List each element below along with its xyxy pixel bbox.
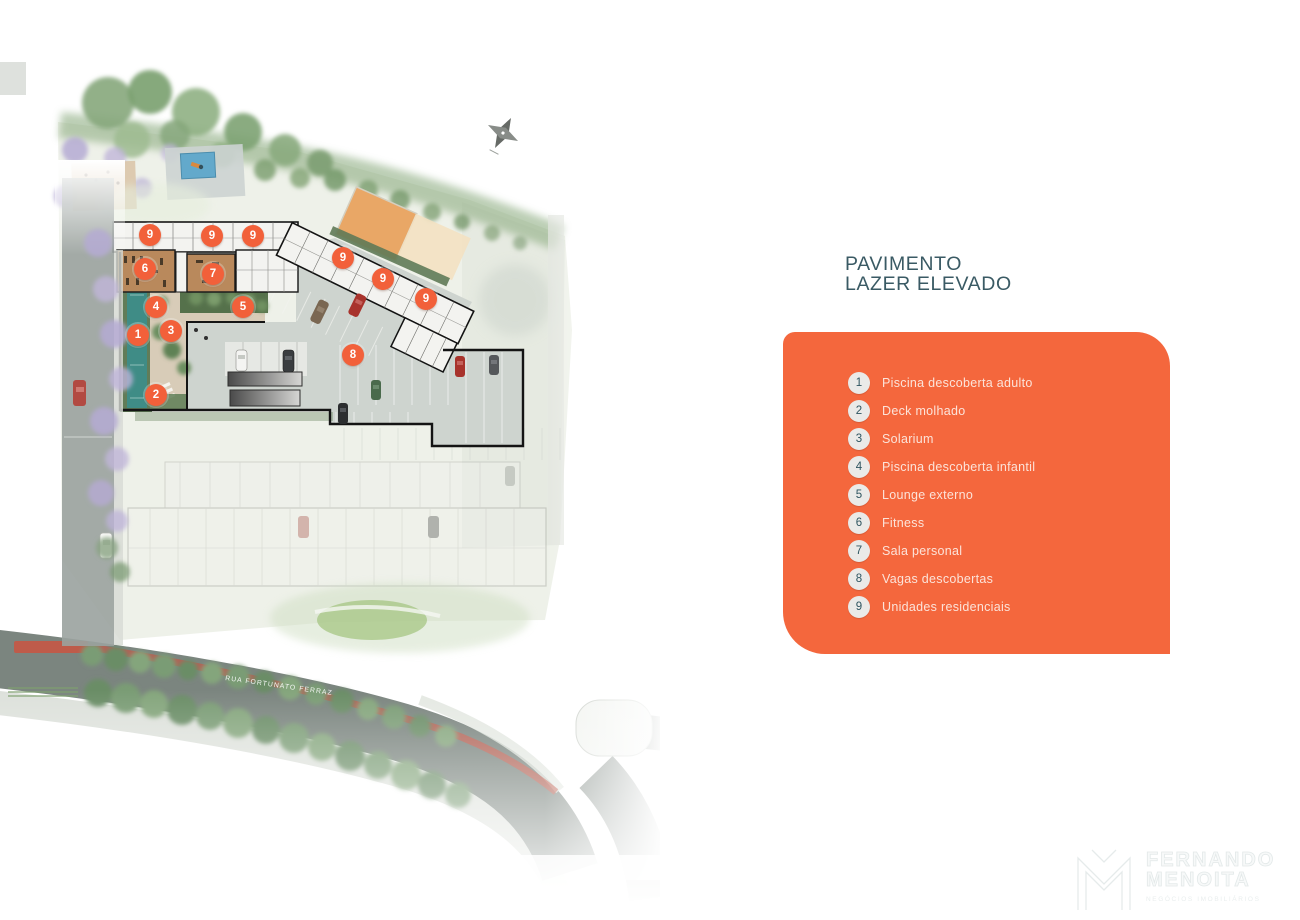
- plan-marker-number: 6: [142, 263, 148, 275]
- legend-panel: 1 Piscina descoberta adulto 2 Deck molha…: [783, 332, 1170, 654]
- plan-marker-number: 9: [380, 273, 386, 285]
- brand-tagline: NEGÓCIOS IMOBILIÁRIOS: [1146, 896, 1275, 903]
- plan-marker-number: 1: [135, 329, 141, 341]
- legend-item-number-badge: 2: [848, 400, 870, 422]
- plan-marker: 1: [127, 324, 149, 346]
- legend-item: 7 Sala personal: [783, 537, 1170, 565]
- plan-marker-number: 9: [340, 252, 346, 264]
- legend-item: 9 Unidades residenciais: [783, 593, 1170, 621]
- plan-marker: 9: [372, 268, 394, 290]
- legend-item-number-badge: 6: [848, 512, 870, 534]
- street-left: [55, 160, 133, 646]
- legend-item: 4 Piscina descoberta infantil: [783, 453, 1170, 481]
- plan-marker: 3: [160, 320, 182, 342]
- legend-item: 1 Piscina descoberta adulto: [783, 369, 1170, 397]
- legend-item: 5 Lounge externo: [783, 481, 1170, 509]
- plan-marker-number: 5: [240, 301, 246, 313]
- plan-marker-number: 7: [210, 268, 216, 280]
- plan-marker: 4: [145, 296, 167, 318]
- garage-ramp: [230, 390, 300, 406]
- legend-item-number-badge: 9: [848, 596, 870, 618]
- legend-item-label: Lounge externo: [882, 488, 973, 502]
- brand-monogram-icon: [1072, 842, 1136, 914]
- legend-item-label: Piscina descoberta adulto: [882, 376, 1033, 390]
- garage-ramp: [228, 372, 302, 386]
- brand-watermark: FERNANDO MENOITA NEGÓCIOS IMOBILIÁRIOS: [1072, 842, 1275, 914]
- legend-item-number-badge: 4: [848, 456, 870, 478]
- legend-item-label: Deck molhado: [882, 404, 966, 418]
- legend-item-label: Piscina descoberta infantil: [882, 460, 1035, 474]
- brand-text: FERNANDO MENOITA NEGÓCIOS IMOBILIÁRIOS: [1146, 842, 1275, 903]
- plan-marker: 9: [242, 225, 264, 247]
- brand-name-line2: MENOITA: [1146, 870, 1275, 890]
- page-title-line1: PAVIMENTO: [845, 254, 1012, 274]
- plan-marker-number: 9: [147, 229, 153, 241]
- legend-item-label: Fitness: [882, 516, 924, 530]
- plan-marker: 9: [139, 224, 161, 246]
- legend-item: 2 Deck molhado: [783, 397, 1170, 425]
- plan-marker-number: 4: [153, 301, 159, 313]
- legend-item: 6 Fitness: [783, 509, 1170, 537]
- ghost-tower: [479, 264, 551, 336]
- legend-item: 8 Vagas descobertas: [783, 565, 1170, 593]
- legend-item-number-badge: 3: [848, 428, 870, 450]
- north-arrow-icon: [478, 110, 526, 160]
- plan-marker: 7: [202, 263, 224, 285]
- plan-marker: 9: [201, 225, 223, 247]
- plan-marker: 9: [332, 247, 354, 269]
- plan-marker: 5: [232, 296, 254, 318]
- adult-pool: [127, 288, 147, 408]
- legend-item-label: Unidades residenciais: [882, 600, 1011, 614]
- legend-item: 3 Solarium: [783, 425, 1170, 453]
- legend-list: 1 Piscina descoberta adulto 2 Deck molha…: [783, 369, 1170, 621]
- page-title: PAVIMENTO LAZER ELEVADO: [845, 254, 1012, 294]
- page-title-line2: LAZER ELEVADO: [845, 274, 1012, 294]
- plan-marker-number: 8: [350, 349, 356, 361]
- page: RUA FORTUNATO FERRAZ: [0, 0, 1300, 920]
- legend-item-label: Sala personal: [882, 544, 962, 558]
- legend-item-number-badge: 1: [848, 372, 870, 394]
- legend-item-label: Solarium: [882, 432, 934, 446]
- legend-item-number-badge: 5: [848, 484, 870, 506]
- plan-marker: 8: [342, 344, 364, 366]
- plan-marker-number: 9: [423, 293, 429, 305]
- plan-marker-number: 3: [168, 325, 174, 337]
- plan-marker-number: 9: [209, 230, 215, 242]
- legend-item-number-badge: 8: [848, 568, 870, 590]
- plan-marker: 6: [134, 258, 156, 280]
- site-plan-map: RUA FORTUNATO FERRAZ: [0, 0, 660, 920]
- legend-item-number-badge: 7: [848, 540, 870, 562]
- plan-marker: 9: [415, 288, 437, 310]
- plan-marker: 2: [145, 384, 167, 406]
- plan-marker-number: 2: [153, 389, 159, 401]
- plan-marker-number: 9: [250, 230, 256, 242]
- brand-name-line1: FERNANDO: [1146, 850, 1275, 870]
- legend-item-label: Vagas descobertas: [882, 572, 993, 586]
